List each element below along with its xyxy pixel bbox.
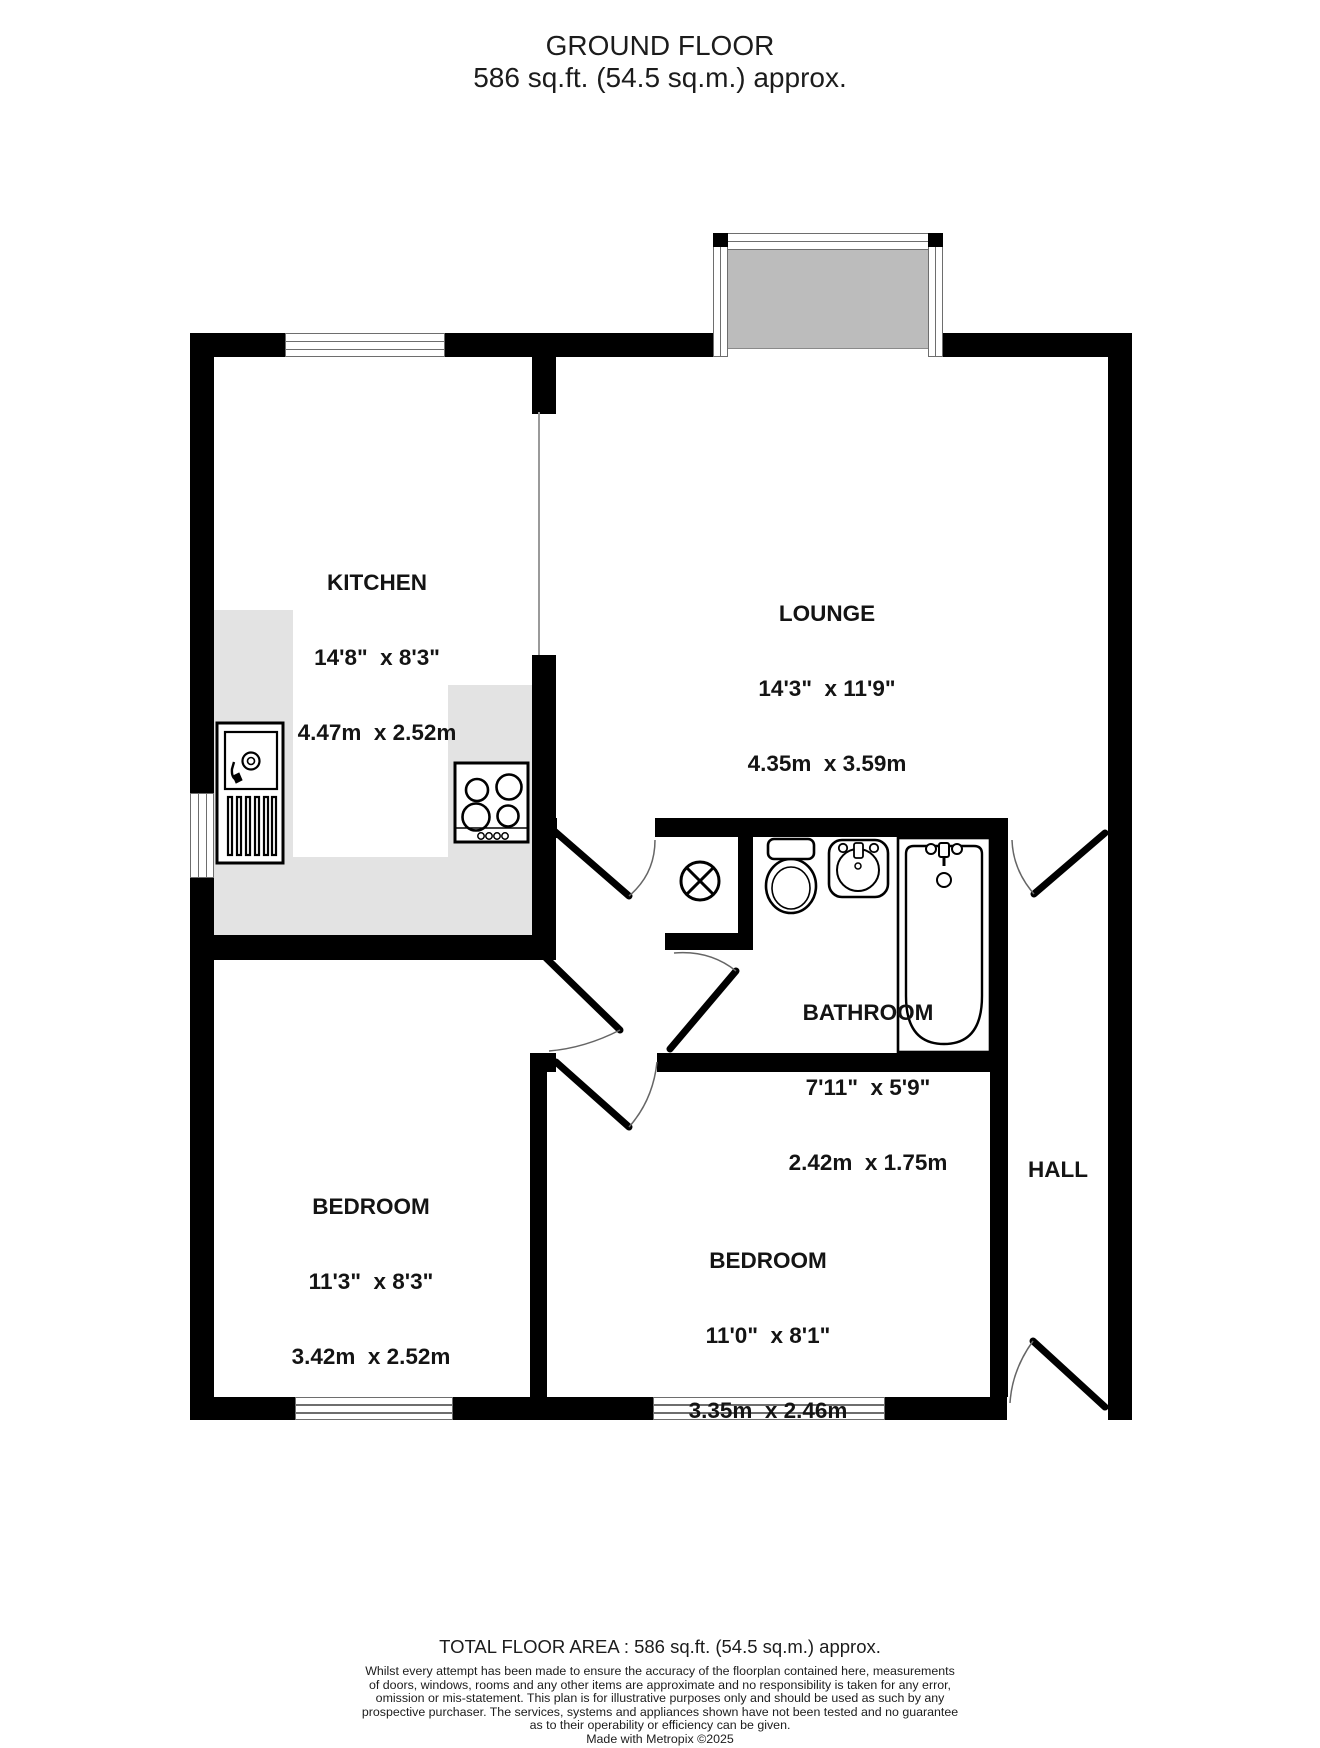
- toilet: [766, 839, 816, 913]
- lounge-door-arc: [1012, 840, 1034, 894]
- kitchen-sink-unit: [217, 723, 283, 863]
- room-name: KITCHEN: [298, 570, 457, 595]
- room-label-kitchen: KITCHEN 14'8" x 8'3" 4.47m x 2.52m: [298, 520, 457, 795]
- kitchen-door-arc: [629, 840, 655, 896]
- floorplan: GROUND FLOOR 586 sq.ft. (54.5 sq.m.) app…: [0, 0, 1320, 1748]
- disclaimer-line: prospective purchaser. The services, sys…: [0, 1706, 1320, 1720]
- bedroom2-door-arc: [629, 1062, 657, 1127]
- room-label-bedroom1: BEDROOM 11'3" x 8'3" 3.42m x 2.52m: [292, 1144, 451, 1419]
- room-name: BATHROOM: [789, 1000, 948, 1025]
- room-name: BEDROOM: [292, 1194, 451, 1219]
- room-name: HALL: [1028, 1157, 1088, 1182]
- disclaimer-line: Whilst every attempt has been made to en…: [0, 1665, 1320, 1679]
- hob: [455, 763, 528, 842]
- bedroom1-door-leaf: [546, 958, 620, 1030]
- disclaimer-line: omission or mis-statement. This plan is …: [0, 1692, 1320, 1706]
- room-label-bathroom: BATHROOM 7'11" x 5'9" 2.42m x 1.75m: [789, 950, 948, 1225]
- room-name: BEDROOM: [689, 1248, 848, 1273]
- bathroom-door-leaf: [670, 971, 736, 1049]
- metropix-credit: Made with Metropix ©2025: [0, 1733, 1320, 1747]
- room-dims-metric: 2.42m x 1.75m: [789, 1150, 948, 1175]
- room-name: LOUNGE: [748, 601, 907, 626]
- room-dims-imperial: 11'0" x 8'1": [689, 1323, 848, 1348]
- bedroom1-door-arc: [549, 1030, 620, 1051]
- basin: [829, 840, 888, 897]
- footer: TOTAL FLOOR AREA : 586 sq.ft. (54.5 sq.m…: [0, 1636, 1320, 1747]
- bedroom2-door-leaf: [556, 1062, 629, 1127]
- room-dims-imperial: 7'11" x 5'9": [789, 1075, 948, 1100]
- front-door-leaf: [1033, 1341, 1105, 1407]
- room-label-hall: HALL: [1028, 1107, 1088, 1232]
- lounge-door-leaf: [1034, 833, 1105, 894]
- disclaimer-line: of doors, windows, rooms and any other i…: [0, 1679, 1320, 1693]
- room-dims-imperial: 11'3" x 8'3": [292, 1269, 451, 1294]
- disclaimer-line: as to their operability or efficiency ca…: [0, 1719, 1320, 1733]
- airing-cupboard-icon: [681, 862, 719, 900]
- room-label-lounge: LOUNGE 14'3" x 11'9" 4.35m x 3.59m: [748, 551, 907, 826]
- room-label-bedroom2: BEDROOM 11'0" x 8'1" 3.35m x 2.46m: [689, 1198, 848, 1473]
- room-dims-imperial: 14'3" x 11'9": [748, 676, 907, 701]
- kitchen-door-leaf: [552, 829, 629, 896]
- room-dims-imperial: 14'8" x 8'3": [298, 645, 457, 670]
- fixtures-layer: [0, 0, 1320, 1748]
- room-dims-metric: 3.35m x 2.46m: [689, 1398, 848, 1423]
- room-dims-metric: 4.35m x 3.59m: [748, 751, 907, 776]
- bathroom-door-arc: [674, 953, 736, 971]
- total-floor-area: TOTAL FLOOR AREA : 586 sq.ft. (54.5 sq.m…: [0, 1636, 1320, 1658]
- front-door-arc: [1010, 1341, 1033, 1403]
- room-dims-metric: 3.42m x 2.52m: [292, 1344, 451, 1369]
- room-dims-metric: 4.47m x 2.52m: [298, 720, 457, 745]
